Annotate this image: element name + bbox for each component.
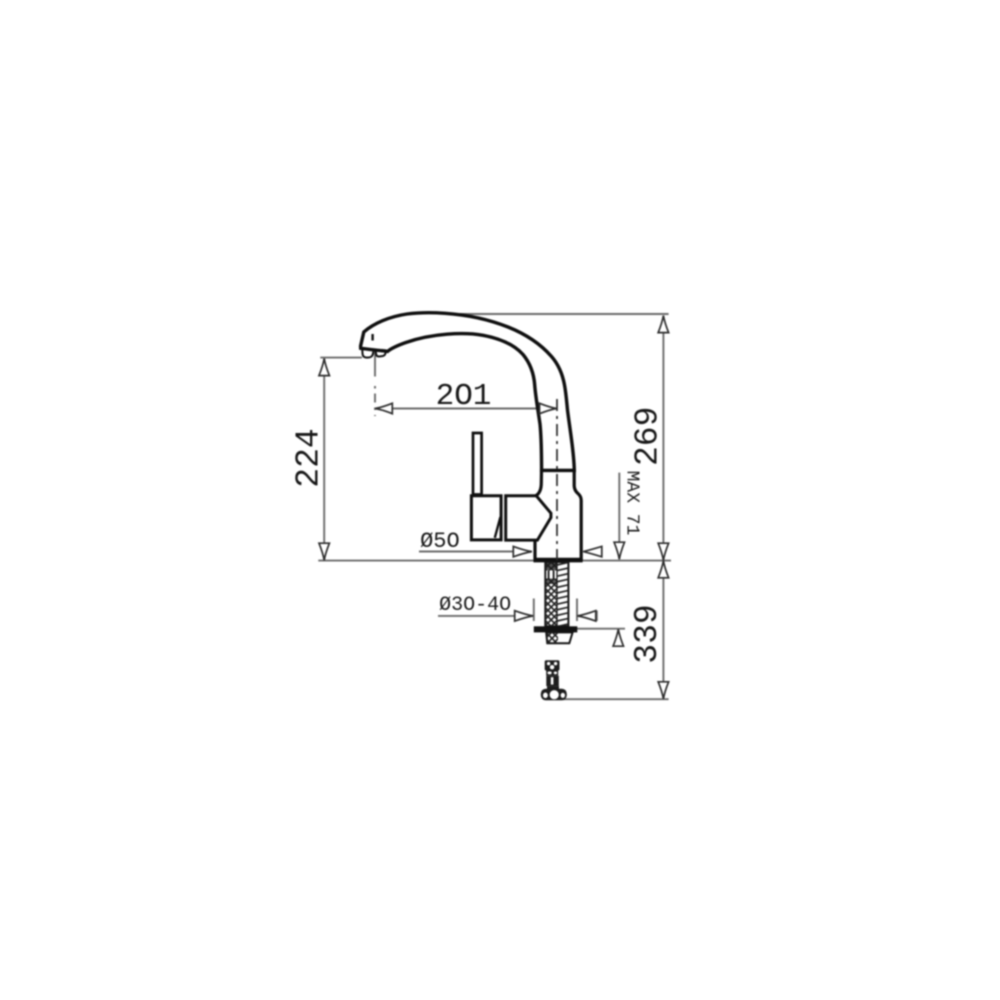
svg-text:MAX 71: MAX 71 xyxy=(621,471,641,536)
svg-text:Ø3O-4O: Ø3O-4O xyxy=(439,594,511,617)
svg-text:Ø5O: Ø5O xyxy=(420,529,460,554)
svg-text:339: 339 xyxy=(629,604,666,663)
svg-text:224: 224 xyxy=(290,428,327,487)
svg-text:269: 269 xyxy=(629,407,666,466)
svg-text:2O1: 2O1 xyxy=(436,379,492,414)
